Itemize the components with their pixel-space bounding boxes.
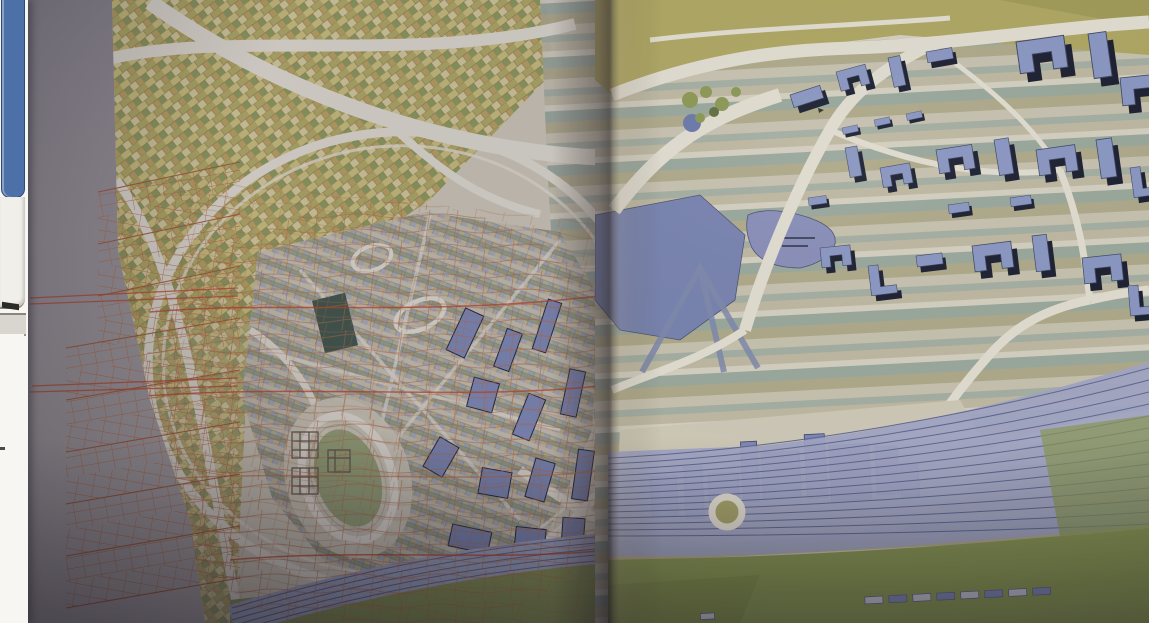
background-window-blue-border[interactable] <box>1 0 25 198</box>
screen <box>0 0 1149 623</box>
background-window-white-panel[interactable] <box>0 197 25 309</box>
background-window-lower-panel[interactable] <box>0 334 24 623</box>
photo-color-cast <box>24 0 1149 623</box>
book-photo <box>0 0 1149 623</box>
clipped-text-dash <box>0 447 5 450</box>
stacked-sheets-strip <box>0 313 26 336</box>
desktop-strip <box>0 0 28 623</box>
